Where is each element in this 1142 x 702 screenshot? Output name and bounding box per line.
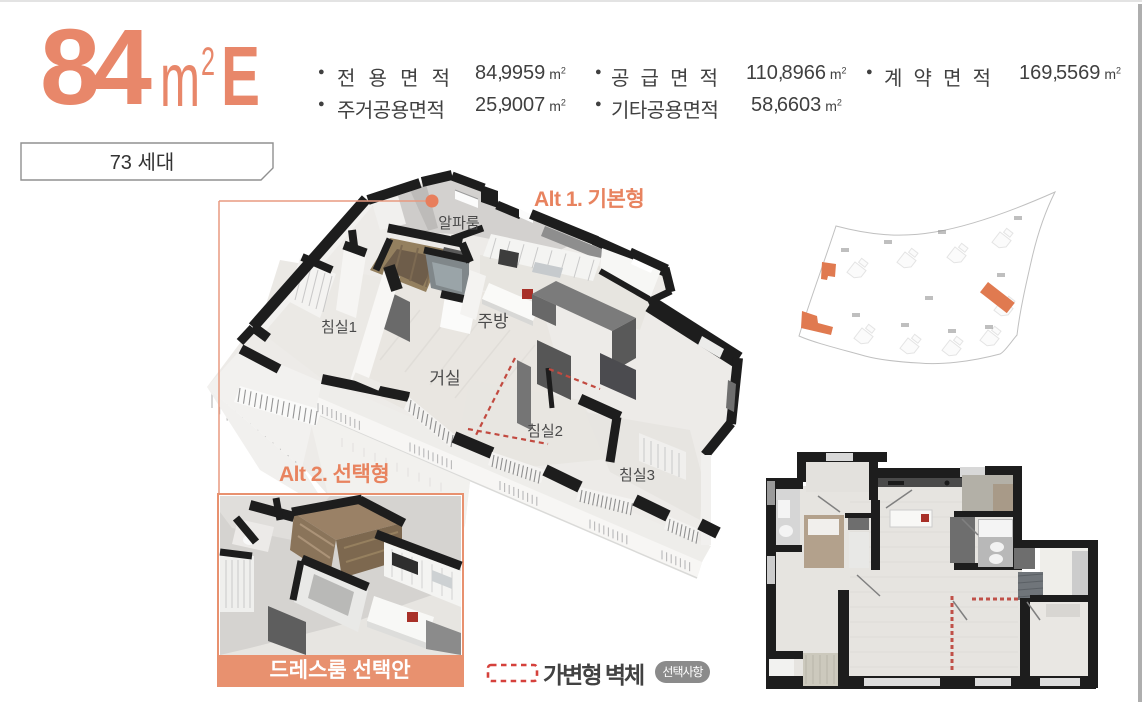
svg-text:침실2: 침실2 (527, 423, 563, 440)
svg-text:침실1: 침실1 (321, 319, 357, 336)
svg-text:주방: 주방 (477, 312, 509, 331)
svg-text:거실: 거실 (429, 369, 460, 388)
svg-text:알파룸: 알파룸 (438, 215, 480, 232)
svg-text:침실3: 침실3 (619, 467, 655, 484)
svg-text:드레스룸 선택안: 드레스룸 선택안 (269, 659, 410, 682)
